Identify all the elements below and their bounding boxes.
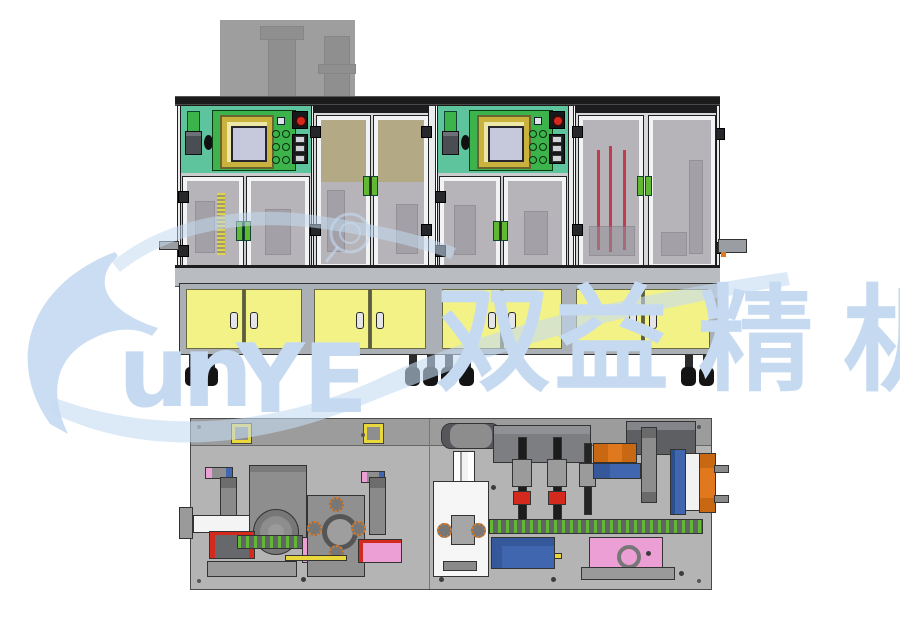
m2-interior-column bbox=[689, 160, 703, 254]
m2-tall-door-right bbox=[649, 116, 715, 268]
m2-connector-panel bbox=[549, 134, 565, 164]
m1-cab-handle-4 bbox=[376, 312, 384, 329]
plate-screw bbox=[697, 425, 701, 429]
m2-lower-door-area bbox=[438, 173, 568, 266]
m2-cabinet-group-1 bbox=[442, 289, 562, 349]
m1-button-6 bbox=[282, 156, 290, 164]
yellow-locator-bracket-1 bbox=[232, 424, 251, 443]
m2-lower-door-left bbox=[440, 177, 500, 270]
white-plate-bolt-circle-1 bbox=[437, 523, 452, 538]
m2-interior-machinery-3 bbox=[589, 226, 635, 256]
m1-lower-door-handle-right bbox=[244, 221, 251, 241]
m2-cab-handle-3 bbox=[629, 312, 637, 329]
side-pin-2 bbox=[714, 495, 729, 503]
m1-doorbay-top-strip bbox=[314, 106, 428, 113]
press-silhouette-2-beam bbox=[318, 64, 356, 74]
m1-glass-tan-zone bbox=[321, 120, 366, 182]
m1-connector-1 bbox=[295, 136, 305, 143]
m2-cabinet-door-3 bbox=[576, 289, 642, 349]
bolt-circle-left bbox=[307, 521, 322, 536]
m1-hmi-screen bbox=[231, 126, 267, 162]
caster-wheel bbox=[423, 367, 438, 386]
m1-button-grid bbox=[272, 129, 290, 165]
m2-operator-board bbox=[469, 110, 553, 171]
left-edge-tab bbox=[179, 507, 193, 539]
slide-carriage-2 bbox=[547, 459, 567, 487]
m2-hmi-screen bbox=[488, 126, 524, 162]
m2-doorbay-top-strip bbox=[576, 106, 716, 113]
m1-button-5 bbox=[272, 156, 280, 164]
m1-tall-door-handle-right bbox=[371, 176, 378, 196]
m2-cabinet-group-2 bbox=[576, 289, 710, 349]
m1-connector-3 bbox=[295, 155, 305, 162]
m1-tall-hinge-1 bbox=[310, 126, 321, 138]
m2-button-6 bbox=[539, 156, 547, 164]
blue-bottom-plate bbox=[491, 537, 555, 569]
m2-control-bay bbox=[437, 105, 569, 267]
m1-tall-hinge-2 bbox=[310, 224, 321, 236]
m1-cab-handle-2 bbox=[250, 312, 258, 329]
m2-interior-machinery-2 bbox=[524, 211, 548, 255]
right-latch-handle bbox=[718, 239, 747, 253]
blue-rail-tall bbox=[670, 449, 686, 515]
m2-button-3 bbox=[529, 143, 537, 151]
plate-screw bbox=[197, 579, 201, 583]
right-latch-dot bbox=[721, 252, 726, 257]
m1-cabinet-door-2 bbox=[245, 289, 302, 349]
lower-cabinet bbox=[179, 283, 718, 355]
m1-signal-tower-light bbox=[187, 111, 200, 133]
caster-wheel bbox=[405, 367, 420, 386]
m2-cabinet-door-2 bbox=[503, 289, 562, 349]
caster-wheel bbox=[681, 367, 696, 386]
m2-lower-door-handle-left bbox=[493, 221, 500, 241]
m2-button-2 bbox=[539, 130, 547, 138]
vertical-actuator-2 bbox=[369, 477, 386, 535]
m1-button-1 bbox=[272, 130, 280, 138]
m1-lower-hinge-1 bbox=[178, 191, 189, 203]
press-silhouette-1-head bbox=[260, 26, 304, 40]
bolt-circle-top bbox=[329, 497, 344, 512]
m1-interior-machinery-2 bbox=[265, 209, 291, 255]
m2-lower-door-handle-right bbox=[501, 221, 508, 241]
plate-hole bbox=[551, 577, 556, 582]
m2-cab-handle-2 bbox=[508, 312, 516, 329]
m2-interior-machinery bbox=[454, 205, 476, 255]
plate-screw bbox=[197, 425, 201, 429]
m1-connector-panel bbox=[292, 134, 308, 164]
m1-indicator-light bbox=[277, 117, 285, 125]
m1-cab-handle-3 bbox=[356, 312, 364, 329]
dark-housing bbox=[493, 425, 591, 463]
m2-emergency-stop-button bbox=[553, 116, 563, 126]
m1-tall-door-handle-left bbox=[363, 176, 370, 196]
pink-fixture-plate-1 bbox=[358, 539, 402, 563]
m2-tall-door-left bbox=[579, 116, 643, 268]
m2-button-4 bbox=[539, 143, 547, 151]
m1-lower-hinge-2 bbox=[178, 245, 189, 257]
m1-emergency-stop-button bbox=[296, 116, 306, 126]
gray-plate-bottom-right bbox=[581, 567, 675, 580]
red-grip-pad-2 bbox=[548, 491, 566, 505]
green-dot-conveyor-rail bbox=[489, 519, 703, 534]
vertical-cylinder-2 bbox=[641, 427, 657, 503]
m2-cabinet-door-4 bbox=[644, 289, 710, 349]
caster-wheel bbox=[185, 367, 200, 386]
m2-signal-tower-light bbox=[444, 111, 457, 133]
plate-screw bbox=[361, 433, 365, 437]
pink-plate-ring bbox=[617, 545, 641, 569]
m1-yellow-perforated-strip bbox=[217, 193, 225, 255]
blue-block-row bbox=[593, 463, 641, 479]
m2-interior-machinery-4 bbox=[661, 232, 687, 256]
m1-interior-machinery-4 bbox=[396, 204, 418, 254]
m2-button-1 bbox=[529, 130, 537, 138]
plate-hole bbox=[646, 551, 651, 556]
orange-block-cluster bbox=[593, 443, 637, 463]
m2-cab-handle-1 bbox=[488, 312, 496, 329]
m1-cabinet-group-1 bbox=[186, 289, 302, 349]
m1-lower-door-right bbox=[247, 177, 309, 270]
m1-control-panel bbox=[181, 106, 311, 175]
m2-door-bay bbox=[575, 105, 717, 267]
m1-button-4 bbox=[282, 143, 290, 151]
m2-indicator-light bbox=[534, 117, 542, 125]
white-plate-bottom-bar bbox=[443, 561, 477, 571]
m2-signal-tower-base bbox=[442, 131, 459, 155]
m1-glass-tan-zone-2 bbox=[378, 120, 424, 182]
m1-interior-machinery-3 bbox=[327, 190, 345, 252]
m1-cabinet-door-3 bbox=[314, 289, 369, 349]
yellow-line-left bbox=[285, 555, 347, 561]
m2-cabinet-door-1 bbox=[442, 289, 501, 349]
m2-lower-hinge-1 bbox=[435, 191, 446, 203]
m1-lower-door-left bbox=[183, 177, 243, 270]
slide-carriage-1 bbox=[512, 459, 532, 487]
plate-hole bbox=[301, 577, 306, 582]
m1-button-2 bbox=[282, 130, 290, 138]
plate-screw bbox=[697, 579, 701, 583]
m2-lower-door-right bbox=[504, 177, 566, 270]
horizontal-cylinder bbox=[441, 423, 501, 449]
plate-hole bbox=[679, 571, 684, 576]
overhead-equipment-block bbox=[220, 20, 355, 103]
m1-screen-bezel bbox=[220, 115, 274, 169]
m2-connector-1 bbox=[552, 136, 562, 143]
yellow-locator-bracket-2 bbox=[364, 424, 383, 443]
m2-tall-door-handle-right bbox=[645, 176, 652, 196]
m1-cabinet-door-4 bbox=[371, 289, 426, 349]
m2-lower-hinge-2 bbox=[435, 245, 446, 257]
machine-front-elevation bbox=[177, 96, 718, 392]
m1-connector-2 bbox=[295, 145, 305, 152]
white-strip-tall bbox=[685, 453, 700, 511]
caster-wheel bbox=[203, 367, 218, 386]
plate-hole bbox=[491, 485, 496, 490]
m1-lower-door-area bbox=[181, 173, 311, 266]
logo-s-swoosh bbox=[28, 252, 158, 434]
caster-wheel bbox=[441, 367, 456, 386]
m2-estop-box bbox=[549, 111, 565, 129]
white-plate-bolt-circle-2 bbox=[471, 523, 486, 538]
m2-button-grid bbox=[529, 129, 547, 165]
m1-cabinet-door-1 bbox=[186, 289, 243, 349]
m2-button-5 bbox=[529, 156, 537, 164]
m2-connector-3 bbox=[552, 155, 562, 162]
m2-tall-hinge-2 bbox=[572, 224, 583, 236]
caster-group-4 bbox=[679, 355, 723, 389]
red-grip-pad-1 bbox=[513, 491, 531, 505]
machine-top-plan bbox=[190, 418, 712, 590]
m2-cab-handle-4 bbox=[649, 312, 657, 329]
plate-hole bbox=[439, 577, 444, 582]
caster-wheel bbox=[459, 367, 474, 386]
green-dot-strip-left bbox=[237, 535, 303, 549]
caster-group-1 bbox=[183, 355, 227, 389]
m2-screen-bezel bbox=[477, 115, 531, 169]
m1-tall-door-right bbox=[374, 116, 428, 268]
m1-door-bay bbox=[313, 105, 429, 267]
m1-signal-tower-base bbox=[185, 131, 202, 155]
orange-pad-column bbox=[699, 453, 716, 513]
m1-cabinet-group-2 bbox=[314, 289, 426, 349]
wm-cjk-char-4: 机 bbox=[843, 274, 900, 408]
m2-control-panel bbox=[438, 106, 568, 175]
m1-cab-handle-1 bbox=[230, 312, 238, 329]
m1-lower-door-handle-left bbox=[236, 221, 243, 241]
m2-tall-hinge-1 bbox=[572, 126, 583, 138]
m1-control-bay bbox=[180, 105, 312, 267]
m1-estop-box bbox=[292, 111, 308, 129]
m1-button-3 bbox=[272, 143, 280, 151]
bolt-circle-right bbox=[351, 521, 366, 536]
m1-operator-board bbox=[212, 110, 296, 171]
m1-interior-machinery bbox=[195, 201, 215, 253]
m2-tall-door-handle-left bbox=[637, 176, 644, 196]
low-plate-left bbox=[207, 561, 297, 577]
side-pin-1 bbox=[714, 465, 729, 473]
plate-seam bbox=[429, 419, 430, 589]
caster-group-3 bbox=[439, 355, 483, 389]
left-latch-handle bbox=[159, 241, 179, 250]
caster-wheel bbox=[699, 367, 714, 386]
m2-connector-2 bbox=[552, 145, 562, 152]
